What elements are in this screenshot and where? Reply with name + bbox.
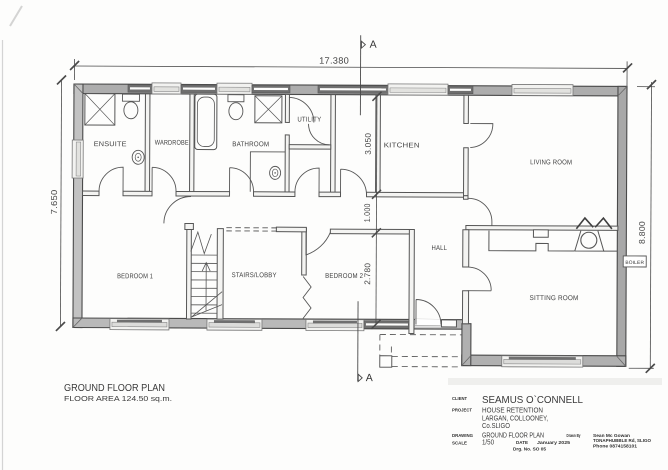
- svg-text:1/50: 1/50: [482, 440, 494, 447]
- svg-text:HALL: HALL: [432, 245, 448, 252]
- svg-text:DATE: DATE: [516, 440, 528, 445]
- svg-text:SITTING ROOM: SITTING ROOM: [530, 295, 579, 302]
- svg-text:FLOOR AREA 124.50 sq.m.: FLOOR AREA 124.50 sq.m.: [64, 394, 172, 403]
- svg-text:SCALE: SCALE: [452, 441, 467, 446]
- svg-text:BOILER: BOILER: [625, 260, 644, 266]
- svg-text:17.380: 17.380: [319, 56, 349, 66]
- svg-text:Phone 0874158101: Phone 0874158101: [593, 444, 637, 449]
- svg-text:A: A: [366, 372, 373, 384]
- svg-text:BATHROOM: BATHROOM: [232, 141, 269, 148]
- svg-text:BEDROOM 1: BEDROOM 1: [117, 273, 153, 280]
- svg-text:January 2025: January 2025: [537, 440, 570, 446]
- svg-text:DRAWING: DRAWING: [452, 433, 473, 438]
- svg-text:WARDROBE: WARDROBE: [155, 140, 189, 147]
- svg-text:KITCHEN: KITCHEN: [384, 142, 420, 149]
- svg-text:Co.SLIGO: Co.SLIGO: [482, 421, 510, 430]
- svg-text:UTILITY: UTILITY: [297, 116, 321, 123]
- svg-text:7.650: 7.650: [49, 189, 59, 214]
- svg-text:8.800: 8.800: [637, 221, 647, 244]
- svg-text:PROJECT: PROJECT: [452, 408, 472, 413]
- svg-text:Drawn By: Drawn By: [567, 433, 581, 438]
- svg-text:3.050: 3.050: [364, 133, 373, 155]
- svg-text:LIVING ROOM: LIVING ROOM: [530, 159, 572, 166]
- svg-text:TONAPHUBBLE Rd, SLIGO: TONAPHUBBLE Rd, SLIGO: [593, 438, 651, 443]
- svg-text:A: A: [370, 39, 377, 51]
- svg-text:2.780: 2.780: [363, 263, 372, 285]
- svg-text:Drg. No. SO 05: Drg. No. SO 05: [513, 447, 546, 453]
- svg-text:CLIENT: CLIENT: [452, 396, 467, 401]
- svg-text:BEDROOM 2: BEDROOM 2: [325, 273, 363, 280]
- svg-text:GROUND FLOOR PLAN: GROUND FLOOR PLAN: [64, 383, 165, 394]
- svg-text:STAIRS/LOBBY: STAIRS/LOBBY: [232, 272, 277, 279]
- svg-text:ENSUITE: ENSUITE: [94, 141, 127, 148]
- svg-text:SEAMUS O`CONNELL: SEAMUS O`CONNELL: [482, 395, 584, 406]
- svg-text:1.000: 1.000: [363, 203, 372, 222]
- svg-text:GROUND FLOOR PLAN: GROUND FLOOR PLAN: [482, 431, 544, 440]
